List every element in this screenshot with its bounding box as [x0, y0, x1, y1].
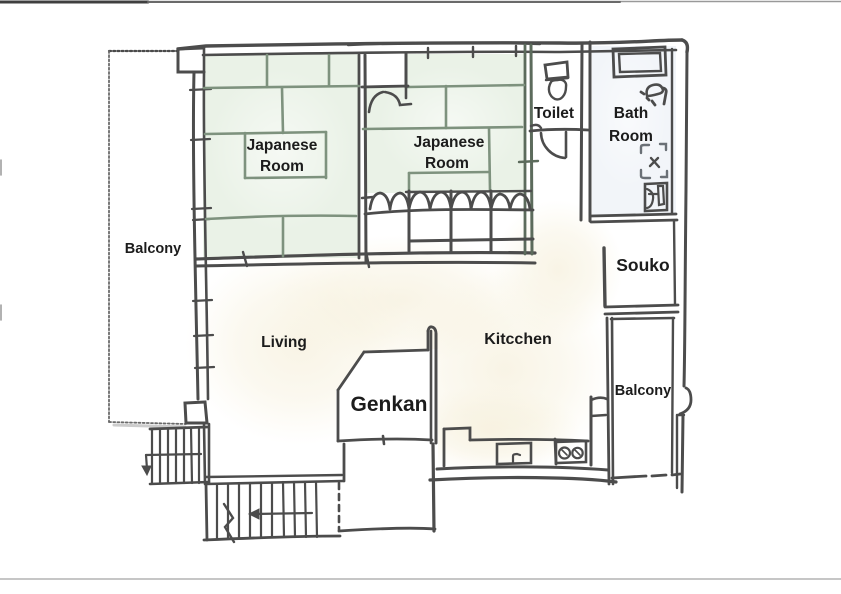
svg-text:Japanese: Japanese [247, 137, 318, 154]
svg-text:Room: Room [609, 128, 653, 145]
svg-text:Room: Room [425, 155, 469, 172]
svg-text:Room: Room [260, 158, 304, 175]
svg-text:Living: Living [261, 334, 307, 351]
svg-text:Balcony: Balcony [125, 241, 181, 257]
svg-text:Toilet: Toilet [534, 105, 574, 122]
svg-text:Bath: Bath [614, 105, 648, 122]
svg-text:Japanese: Japanese [414, 134, 485, 151]
svg-text:Balcony: Balcony [615, 383, 671, 399]
svg-text:Souko: Souko [616, 255, 669, 275]
svg-text:Genkan: Genkan [350, 393, 427, 416]
svg-text:Kitcchen: Kitcchen [484, 331, 552, 348]
